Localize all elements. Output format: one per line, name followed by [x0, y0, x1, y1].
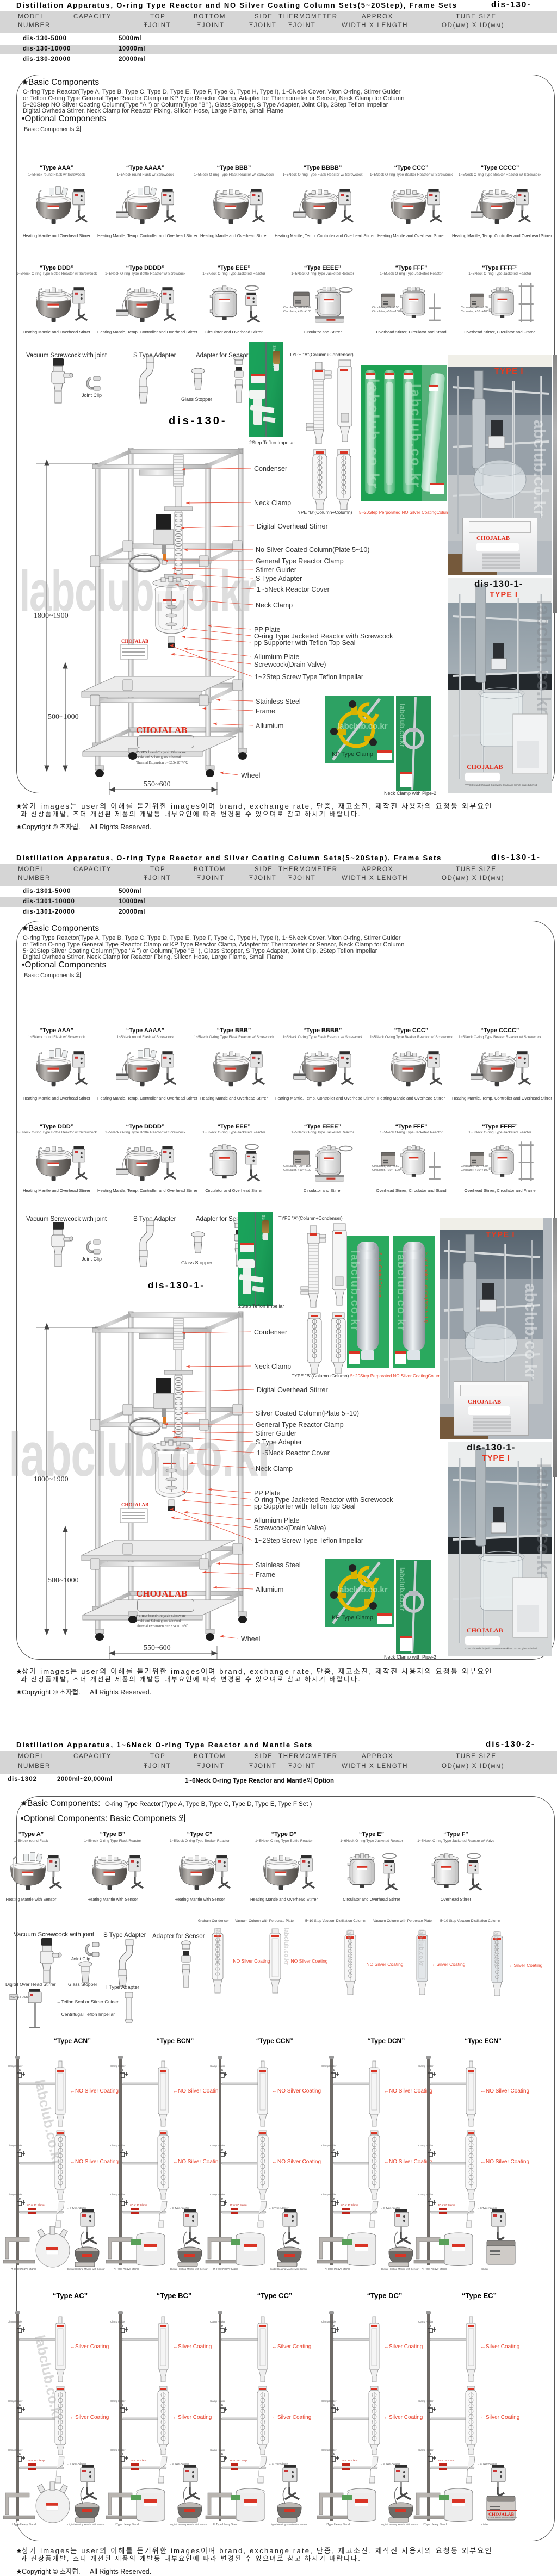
svg-text:Clamp Holder: Clamp Holder [8, 2400, 23, 2403]
svg-text:H Type Heavy Stand: H Type Heavy Stand [422, 2523, 447, 2527]
svg-text:←Silver Coating: ←Silver Coating [272, 2414, 311, 2420]
svg-text:3P or 3P Clamp: 3P or 3P Clamp [341, 2459, 358, 2462]
svg-text:Clamp Holder: Clamp Holder [418, 2065, 434, 2068]
svg-text:3P or 3P Clamp: 3P or 3P Clamp [130, 2459, 147, 2462]
svg-text:Clamp Holder: Clamp Holder [321, 2320, 337, 2323]
svg-text:Clamp Holder: Clamp Holder [418, 2400, 434, 2403]
svg-text:←Silver Coating: ←Silver Coating [480, 2414, 519, 2420]
svg-text:Digital Heating Mantle with Se: Digital Heating Mantle with Sensor [270, 2523, 307, 2526]
svg-text:3P or 3P Clamp: 3P or 3P Clamp [130, 2203, 147, 2206]
svg-text:3P or 3P Clamp: 3P or 3P Clamp [27, 2203, 45, 2206]
svg-text:3P or 3P Clamp: 3P or 3P Clamp [230, 2203, 247, 2206]
svg-text:Clamp Holder: Clamp Holder [418, 2193, 434, 2196]
svg-text:Clamp Holder: Clamp Holder [210, 2400, 225, 2403]
svg-text:←NO Silver Coating: ←NO Silver Coating [272, 2159, 321, 2165]
svg-text:←Silver Coating: ←Silver Coating [480, 2344, 519, 2350]
svg-text:H Type Heavy Stand: H Type Heavy Stand [422, 2268, 447, 2271]
svg-text:3P or 3P Clamp: 3P or 3P Clamp [230, 2459, 247, 2462]
svg-text:3P or 3P Clamp: 3P or 3P Clamp [438, 2459, 455, 2462]
svg-text:H Type Heavy Stand: H Type Heavy Stand [213, 2523, 238, 2527]
svg-text:Digital Heating Mantle with Se: Digital Heating Mantle with Sensor [67, 2268, 105, 2270]
svg-text:←Silver Coating: ←Silver Coating [70, 2414, 109, 2420]
svg-text:Chiller: Chiller [481, 2268, 488, 2270]
svg-text:Digital Heating Mantle with Se: Digital Heating Mantle with Sensor [170, 2523, 208, 2526]
svg-text:←NO Silver Coating: ←NO Silver Coating [272, 2088, 321, 2094]
svg-text:Clamp Holder: Clamp Holder [418, 2320, 434, 2323]
svg-text:←Silver Coating: ←Silver Coating [70, 2344, 109, 2350]
svg-text:Clamp Holder: Clamp Holder [8, 2144, 23, 2147]
svg-text:Digital Heating Mantle with Se: Digital Heating Mantle with Sensor [170, 2268, 208, 2270]
svg-text:3P or 3P Clamp: 3P or 3P Clamp [341, 2203, 358, 2206]
svg-text:Clamp Holder: Clamp Holder [210, 2193, 225, 2196]
svg-text:Clamp Holder: Clamp Holder [8, 2320, 23, 2323]
svg-text:Digital Heating Mantle with Se: Digital Heating Mantle with Sensor [67, 2523, 105, 2526]
svg-text:3P or 3P Clamp: 3P or 3P Clamp [27, 2459, 45, 2462]
svg-text:Clamp Holder: Clamp Holder [8, 2065, 23, 2068]
svg-text:Clamp Holder: Clamp Holder [110, 2320, 126, 2323]
svg-text:Clamp Holder: Clamp Holder [8, 2193, 23, 2196]
svg-text:Clamp Holder: Clamp Holder [418, 2449, 434, 2451]
svg-text:H Type Heavy Stand: H Type Heavy Stand [114, 2523, 139, 2527]
svg-text:Clamp Holder: Clamp Holder [110, 2065, 126, 2068]
svg-text:←Silver Coating: ←Silver Coating [272, 2344, 311, 2350]
svg-text:Clamp Holder: Clamp Holder [110, 2144, 126, 2147]
svg-text:Clamp Holder: Clamp Holder [210, 2065, 225, 2068]
svg-text:Digital Heating Mantle with Se: Digital Heating Mantle with Sensor [270, 2268, 307, 2270]
svg-text:Clamp Holder: Clamp Holder [210, 2449, 225, 2451]
svg-text:Clamp Holder: Clamp Holder [110, 2449, 126, 2451]
svg-text:H Type Heavy Stand: H Type Heavy Stand [114, 2268, 139, 2271]
svg-text:Clamp Holder: Clamp Holder [418, 2144, 434, 2147]
svg-text:Clamp Holder: Clamp Holder [110, 2193, 126, 2196]
svg-text:Clamp Holder: Clamp Holder [321, 2065, 337, 2068]
svg-text:Clamp Holder: Clamp Holder [321, 2144, 337, 2147]
svg-text:H Type Heavy Stand: H Type Heavy Stand [11, 2268, 36, 2271]
svg-text:Clamp Holder: Clamp Holder [321, 2400, 337, 2403]
svg-text:3P or 3P Clamp: 3P or 3P Clamp [438, 2203, 455, 2206]
svg-text:H Type Heavy Stand: H Type Heavy Stand [213, 2268, 238, 2271]
svg-text:H Type Heavy Stand: H Type Heavy Stand [325, 2268, 350, 2271]
svg-text:H Type Heavy Stand: H Type Heavy Stand [11, 2523, 36, 2527]
svg-text:Clamp Holder: Clamp Holder [110, 2400, 126, 2403]
svg-text:Clamp Holder: Clamp Holder [321, 2449, 337, 2451]
svg-text:Clamp Holder: Clamp Holder [8, 2449, 23, 2451]
svg-text:←NO Silver Coating: ←NO Silver Coating [480, 2159, 529, 2165]
svg-text:Clamp Holder: Clamp Holder [210, 2144, 225, 2147]
svg-text:Clamp Holder: Clamp Holder [321, 2193, 337, 2196]
svg-text:←NO Silver Coating: ←NO Silver Coating [480, 2088, 529, 2094]
svg-text:Clamp Holder: Clamp Holder [210, 2320, 225, 2323]
svg-text:H Type Heavy Stand: H Type Heavy Stand [325, 2523, 350, 2527]
